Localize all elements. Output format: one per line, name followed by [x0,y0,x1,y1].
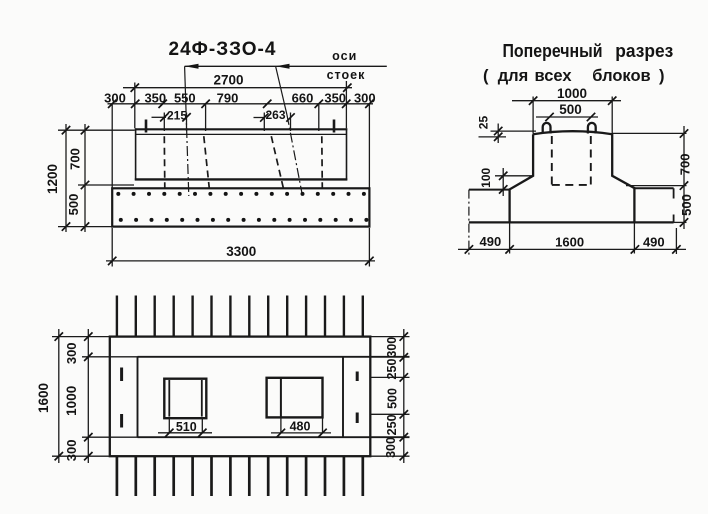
svg-text:250: 250 [385,414,399,435]
svg-text:25: 25 [477,116,491,130]
svg-text:700: 700 [678,154,693,176]
svg-text:всех: всех [534,67,572,85]
svg-text:стоек: стоек [327,68,366,82]
svg-text:500: 500 [66,194,81,216]
svg-text:300: 300 [384,437,398,458]
svg-text:300: 300 [64,440,79,462]
svg-text:разрез: разрез [615,41,673,61]
svg-text:490: 490 [643,235,665,250]
svg-text:500: 500 [559,102,582,117]
svg-text:300: 300 [385,337,399,358]
svg-text:660: 660 [292,91,314,106]
svg-text:2700: 2700 [213,73,243,88]
svg-text:100: 100 [479,167,493,187]
svg-text:790: 790 [217,91,239,106]
svg-text:(: ( [483,67,489,85]
svg-text:1200: 1200 [45,164,60,194]
svg-text:350: 350 [324,91,346,106]
svg-text:1600: 1600 [555,235,584,250]
svg-text:300: 300 [104,91,126,106]
svg-text:для: для [498,67,529,85]
svg-text:550: 550 [174,91,196,106]
svg-text:1000: 1000 [557,86,587,101]
svg-text:500: 500 [679,194,694,216]
svg-text:510: 510 [176,420,197,434]
svg-text:490: 490 [480,234,502,249]
svg-text:блоков: блоков [592,67,650,85]
svg-text:Поперечный: Поперечный [503,41,603,61]
svg-text:350: 350 [144,91,166,106]
svg-text:3300: 3300 [226,244,256,259]
svg-text:250: 250 [385,359,399,380]
svg-text:263: 263 [265,108,285,122]
svg-text:500: 500 [386,388,400,409]
svg-text:24Ф-ЗЗО-4: 24Ф-ЗЗО-4 [169,39,277,60]
svg-text:215: 215 [167,109,187,123]
svg-text:): ) [659,67,665,85]
svg-text:300: 300 [64,342,79,364]
svg-text:300: 300 [354,91,376,106]
svg-text:700: 700 [68,148,83,170]
svg-text:480: 480 [290,420,311,434]
svg-text:1000: 1000 [64,386,79,416]
svg-text:1600: 1600 [36,383,51,413]
svg-text:оси: оси [332,49,357,63]
